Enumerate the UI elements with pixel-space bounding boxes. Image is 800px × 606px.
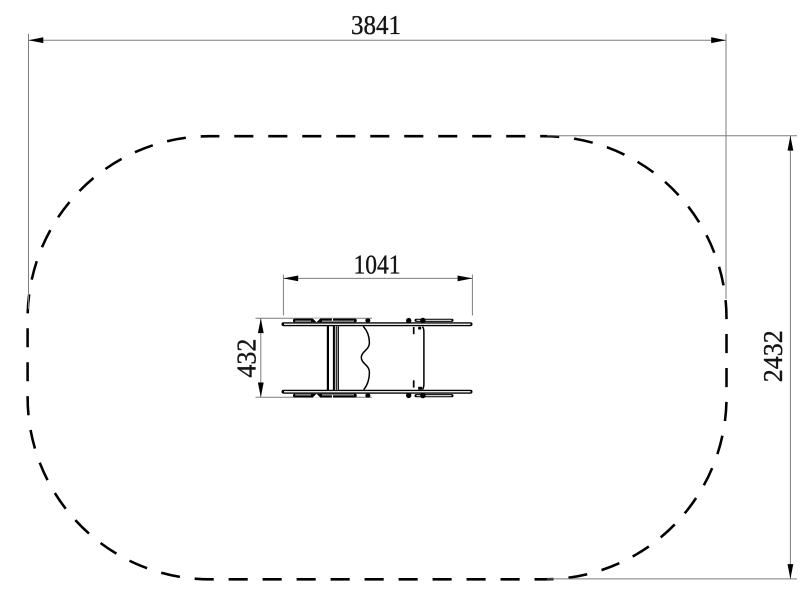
svg-text:432: 432 bbox=[232, 339, 262, 378]
svg-text:3841: 3841 bbox=[351, 10, 401, 40]
svg-text:2432: 2432 bbox=[758, 330, 788, 382]
svg-text:1041: 1041 bbox=[354, 249, 401, 279]
